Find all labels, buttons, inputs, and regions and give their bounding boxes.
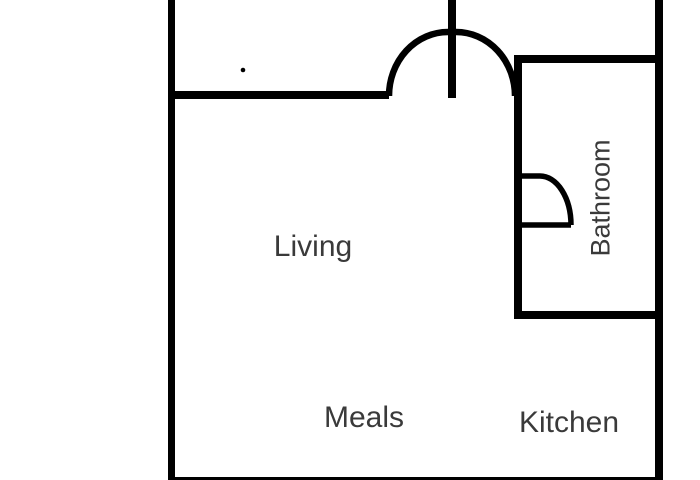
point-marker-dot <box>241 68 246 73</box>
room-label-meals: Meals <box>324 403 404 433</box>
bathroom-door-arc-icon <box>540 176 571 225</box>
double-door-right-arc-icon <box>456 32 515 96</box>
floor-plan: Living Meals Kitchen Bathroom <box>0 0 700 480</box>
room-label-bathroom: Bathroom <box>588 139 615 256</box>
double-door-left-arc-icon <box>389 32 448 96</box>
room-label-kitchen: Kitchen <box>519 408 619 438</box>
room-label-living: Living <box>274 232 352 262</box>
